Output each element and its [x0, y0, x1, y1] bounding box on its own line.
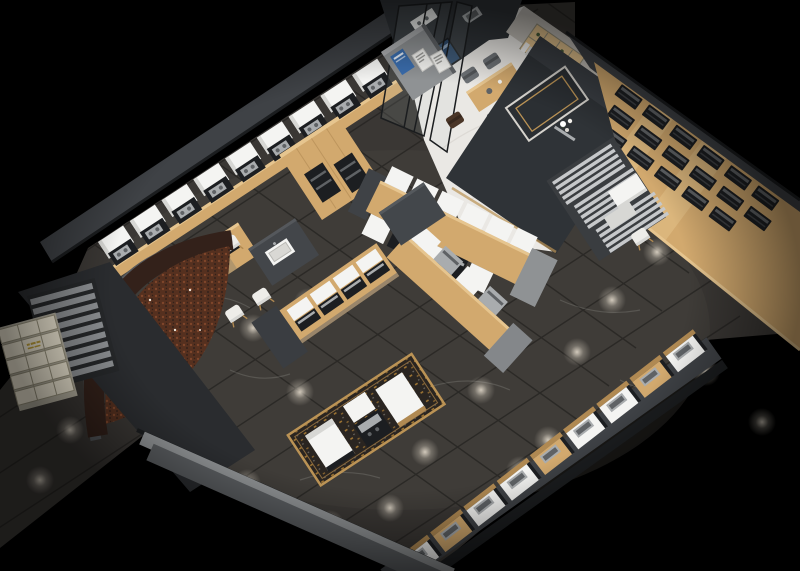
showroom-render: Kitchen appliance showroom — 3D top-down…	[0, 0, 800, 571]
render-canvas: Kitchen appliance showroom — 3D top-down…	[0, 0, 800, 571]
vignette-overlay	[0, 0, 800, 571]
